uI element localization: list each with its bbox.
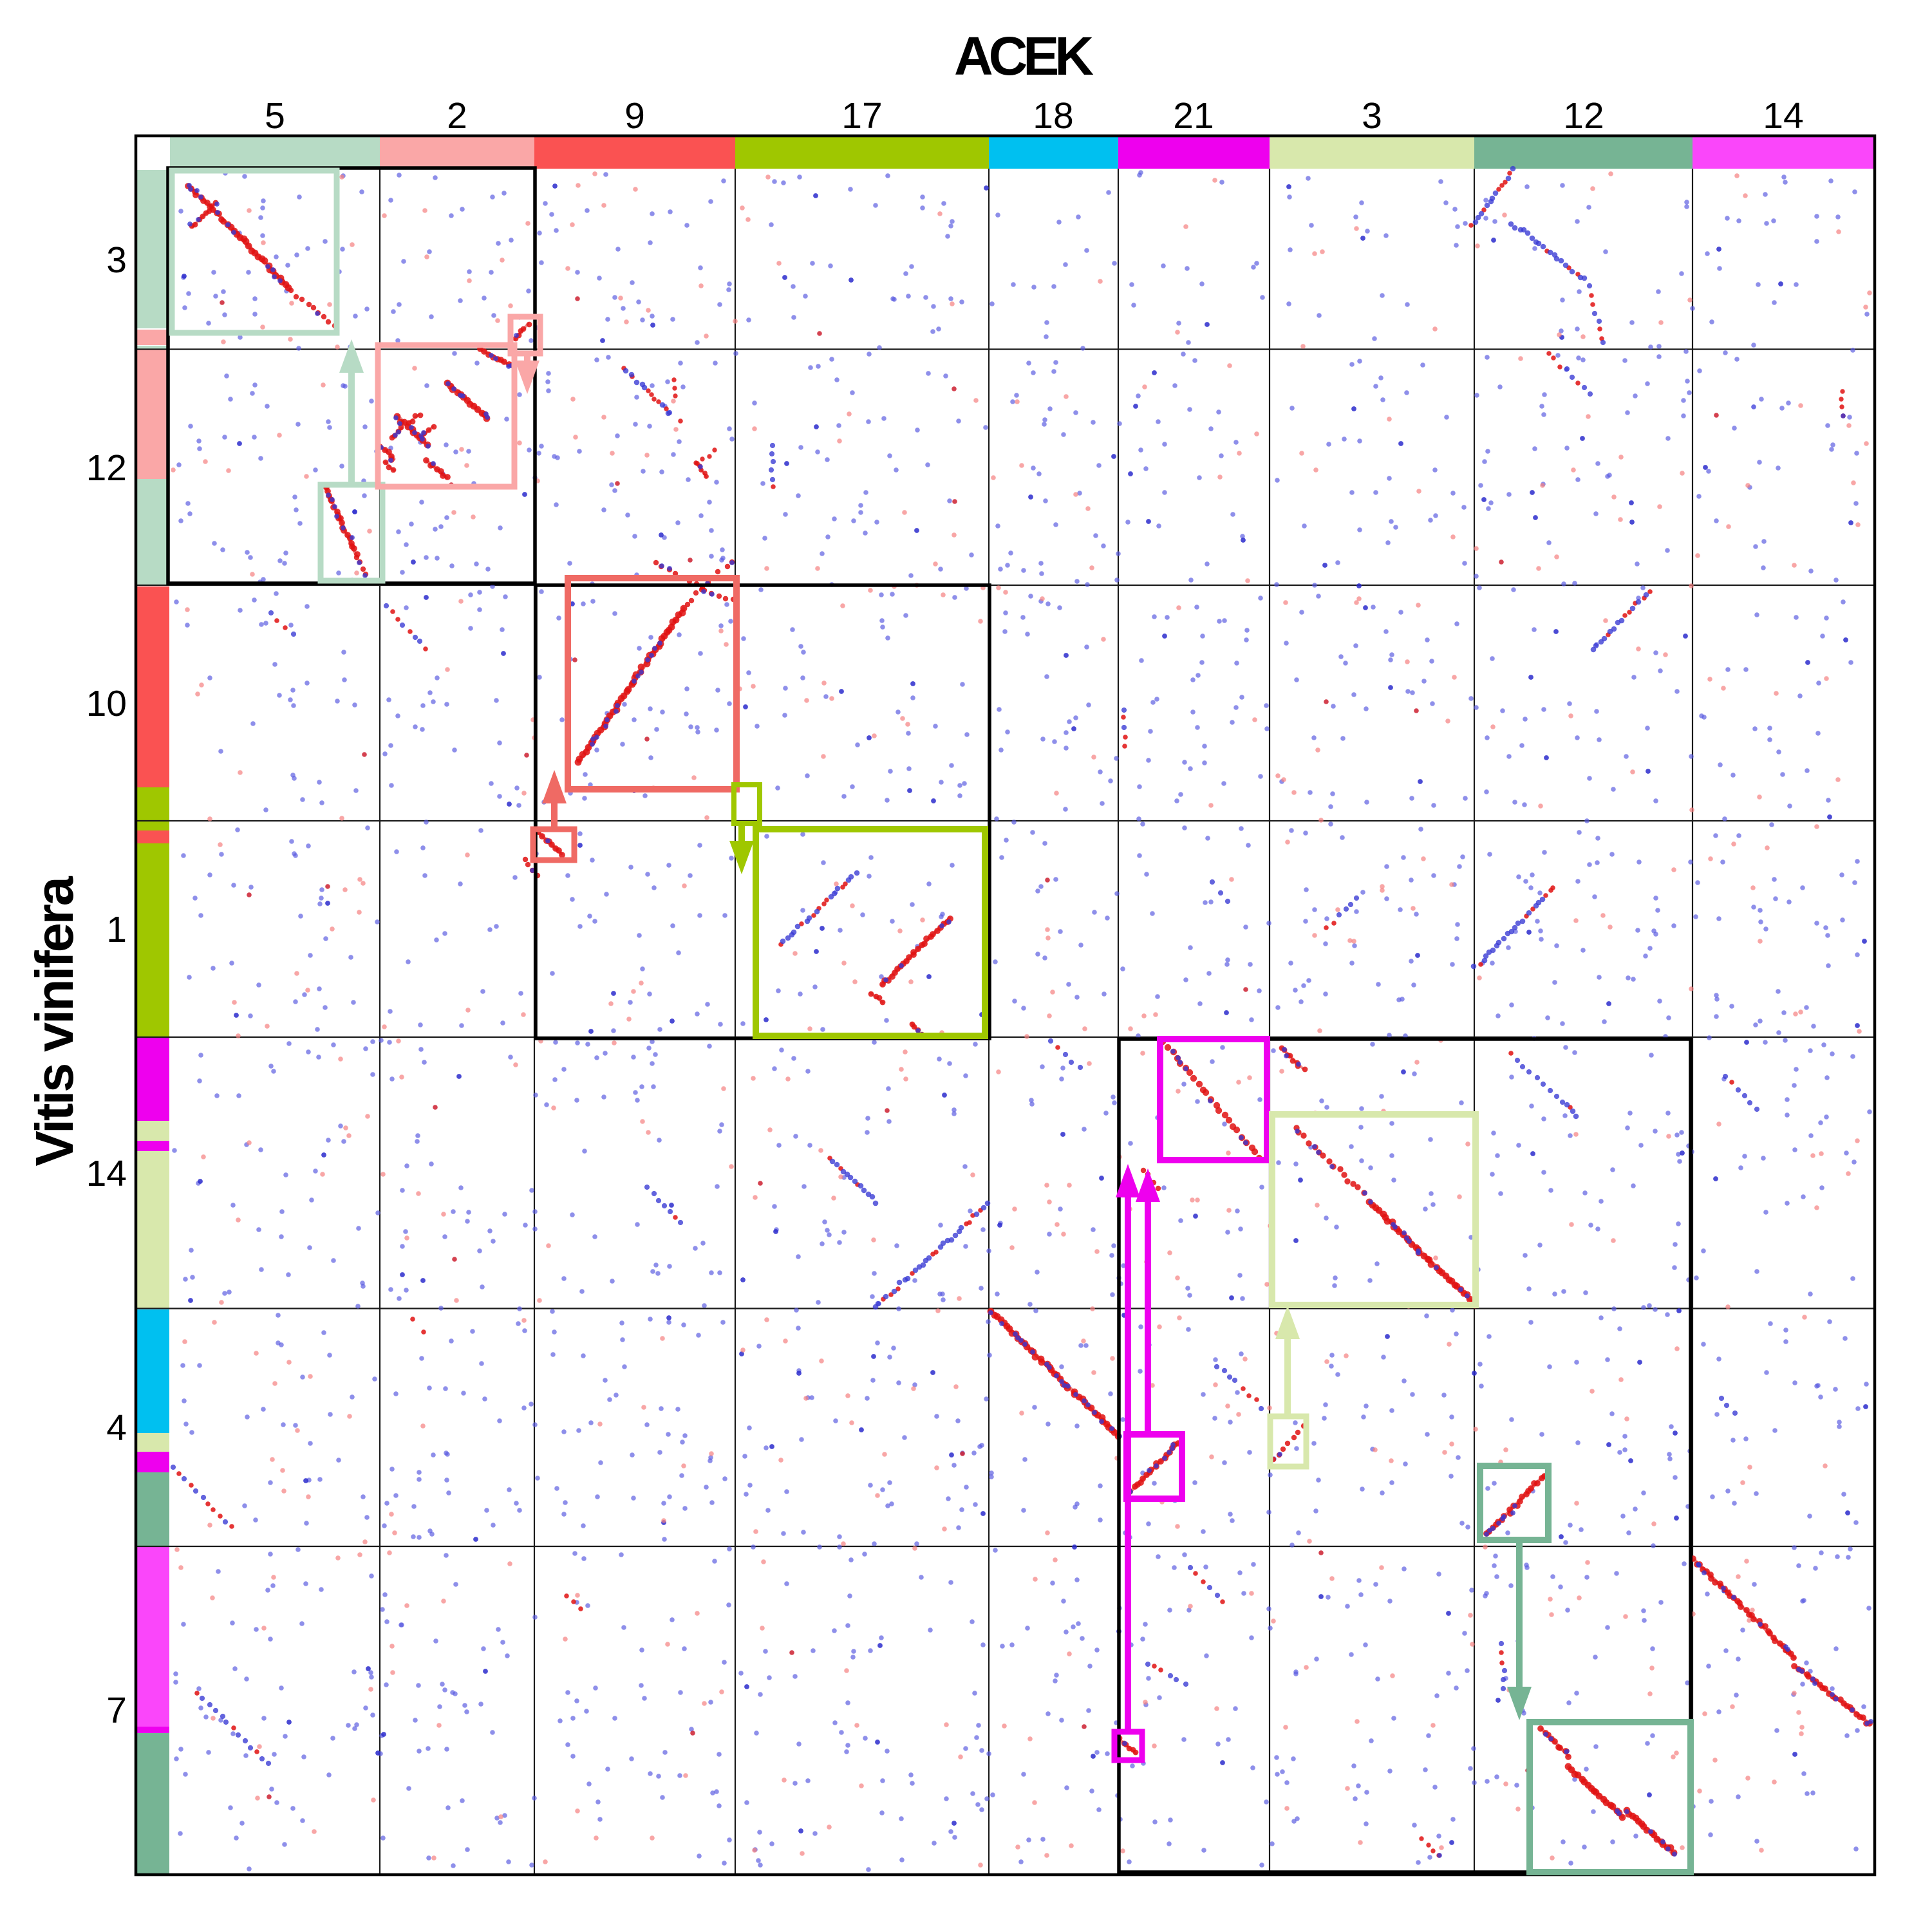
svg-text:Vitis vinifera: Vitis vinifera [24,876,84,1166]
svg-text:7: 7 [106,1690,127,1731]
svg-text:4: 4 [106,1407,127,1449]
svg-text:14: 14 [1763,95,1803,136]
svg-text:5: 5 [265,95,285,136]
svg-text:3: 3 [1362,95,1382,136]
svg-text:14: 14 [86,1153,127,1194]
svg-text:12: 12 [1563,95,1604,136]
svg-text:1: 1 [106,909,127,950]
svg-text:21: 21 [1173,95,1214,136]
svg-text:18: 18 [1033,95,1073,136]
svg-text:17: 17 [841,95,882,136]
svg-text:2: 2 [447,95,467,136]
svg-text:10: 10 [86,683,127,724]
svg-text:12: 12 [86,447,127,489]
svg-text:ACEK: ACEK [954,26,1093,86]
svg-text:3: 3 [106,239,127,281]
svg-text:9: 9 [624,95,645,136]
